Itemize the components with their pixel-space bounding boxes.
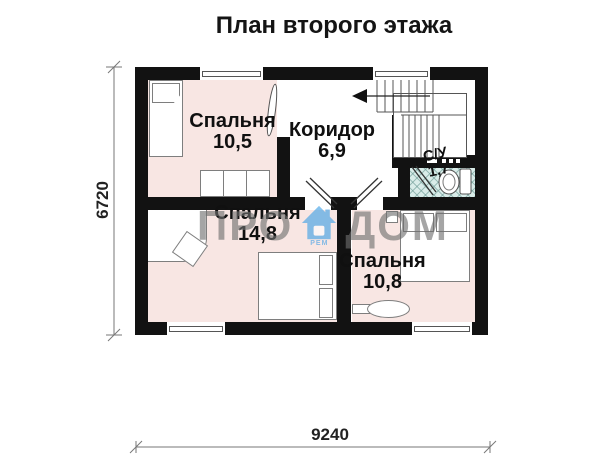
room-area: 10,8 (310, 272, 455, 293)
house-icon (300, 205, 338, 241)
wardrobe-divider (223, 171, 224, 196)
watermark-text-left: ПРО (197, 205, 293, 247)
dimension-horizontal-value: 9240 (300, 426, 360, 444)
watermark-sub-text: РЕМ (310, 240, 328, 247)
watermark: ПРО РЕМ ДОМ (197, 205, 449, 247)
window-icon (200, 67, 263, 80)
window-icon (412, 322, 472, 335)
room-area: 6,9 (262, 141, 402, 162)
dresser-top-icon (367, 300, 410, 318)
house-logo-icon: РЕМ (300, 205, 338, 247)
window-icon (373, 67, 430, 80)
dimension-vertical-value: 6720 (94, 170, 112, 230)
wardrobe-icon (200, 170, 270, 197)
room-name: Коридор (262, 120, 402, 141)
room-label-bedroom3: Спальня 10,8 (310, 251, 455, 293)
room-name: Спальня (310, 251, 455, 272)
floor-plan-canvas: План второго этажа (0, 0, 600, 471)
window-icon (167, 322, 225, 335)
window-pane (202, 71, 261, 77)
watermark-text-right: ДОМ (345, 205, 449, 247)
page-title: План второго этажа (216, 12, 453, 40)
window-pane (375, 71, 428, 77)
pillow-icon (152, 83, 180, 103)
window-pane (169, 326, 223, 332)
wardrobe-divider (246, 171, 247, 196)
window-pane (414, 326, 470, 332)
room-label-corridor: Коридор 6,9 (262, 120, 402, 162)
